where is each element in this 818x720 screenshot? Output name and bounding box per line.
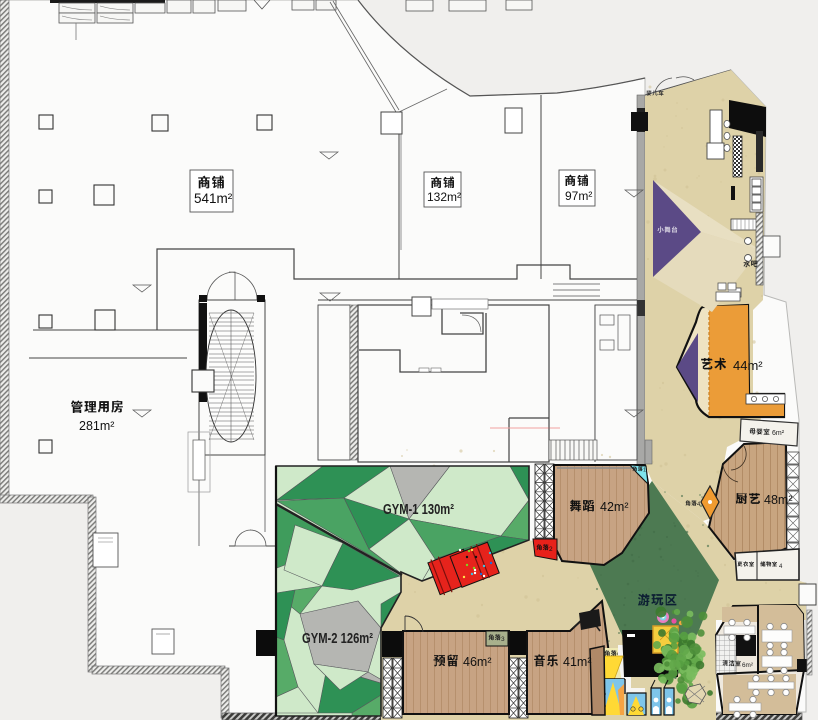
svg-text:6m²: 6m² — [742, 662, 753, 669]
svg-text:97m²: 97m² — [565, 189, 592, 203]
svg-text:281m²: 281m² — [79, 419, 114, 433]
svg-text:44m²: 44m² — [733, 358, 763, 373]
svg-text:2: 2 — [549, 546, 553, 553]
svg-text:541m²: 541m² — [194, 191, 233, 206]
svg-text:6m²: 6m² — [772, 430, 785, 437]
svg-text:1: 1 — [643, 468, 646, 474]
svg-text:GYM-1 130m²: GYM-1 130m² — [383, 502, 454, 518]
svg-text:3: 3 — [501, 636, 505, 643]
svg-text:GYM-2 126m²: GYM-2 126m² — [302, 631, 373, 647]
svg-text:132m²: 132m² — [427, 190, 461, 204]
svg-text:41m²: 41m² — [563, 655, 591, 669]
svg-text:42m²: 42m² — [600, 500, 628, 514]
svg-text:48m²: 48m² — [764, 493, 792, 507]
svg-text:46m²: 46m² — [463, 655, 491, 669]
